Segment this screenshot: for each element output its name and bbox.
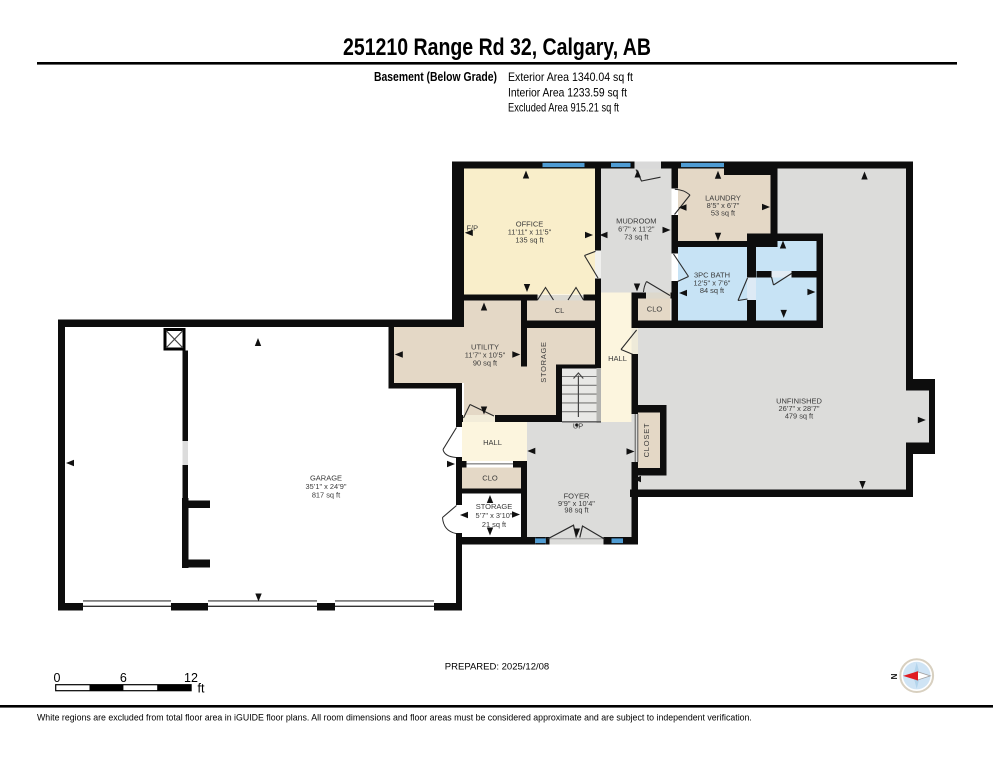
svg-text:84 sq ft: 84 sq ft — [700, 286, 724, 295]
svg-text:HALL: HALL — [608, 354, 627, 363]
svg-text:White regions are excluded fro: White regions are excluded from total fl… — [37, 713, 752, 723]
svg-text:90 sq ft: 90 sq ft — [473, 359, 497, 368]
svg-text:6: 6 — [120, 671, 127, 685]
svg-text:817 sq ft: 817 sq ft — [312, 491, 340, 500]
svg-text:CL: CL — [555, 306, 565, 315]
svg-text:ft: ft — [198, 682, 205, 696]
svg-text:CLO: CLO — [482, 474, 498, 483]
svg-text:251210 Range Rd 32, Calgary, A: 251210 Range Rd 32, Calgary, AB — [343, 34, 651, 61]
svg-text:N: N — [890, 673, 899, 679]
svg-text:135 sq ft: 135 sq ft — [515, 236, 543, 245]
svg-text:UP: UP — [573, 422, 583, 431]
svg-text:5’7" x 3’10": 5’7" x 3’10" — [476, 511, 513, 520]
svg-text:PREPARED: 2025/12/08: PREPARED: 2025/12/08 — [445, 662, 549, 673]
svg-text:0: 0 — [54, 671, 61, 685]
svg-text:12: 12 — [184, 671, 198, 685]
svg-text:Exterior Area 1340.04 sq ft: Exterior Area 1340.04 sq ft — [508, 70, 634, 84]
svg-text:CLO: CLO — [647, 305, 663, 314]
svg-text:73 sq ft: 73 sq ft — [624, 233, 648, 242]
svg-text:STORAGE: STORAGE — [476, 502, 513, 511]
svg-text:53 sq ft: 53 sq ft — [711, 209, 735, 218]
svg-text:STORAGE: STORAGE — [539, 341, 548, 382]
svg-text:HALL: HALL — [483, 438, 502, 447]
svg-text:21 sq ft: 21 sq ft — [482, 520, 506, 529]
svg-text:Excluded Area 915.21 sq ft: Excluded Area 915.21 sq ft — [508, 100, 620, 114]
svg-text:479 sq ft: 479 sq ft — [785, 411, 813, 420]
svg-text:98 sq ft: 98 sq ft — [564, 506, 588, 515]
svg-text:CLOSET: CLOSET — [642, 423, 651, 458]
svg-text:Basement (Below Grade): Basement (Below Grade) — [374, 70, 497, 84]
svg-text:Interior Area 1233.59 sq ft: Interior Area 1233.59 sq ft — [508, 85, 628, 99]
